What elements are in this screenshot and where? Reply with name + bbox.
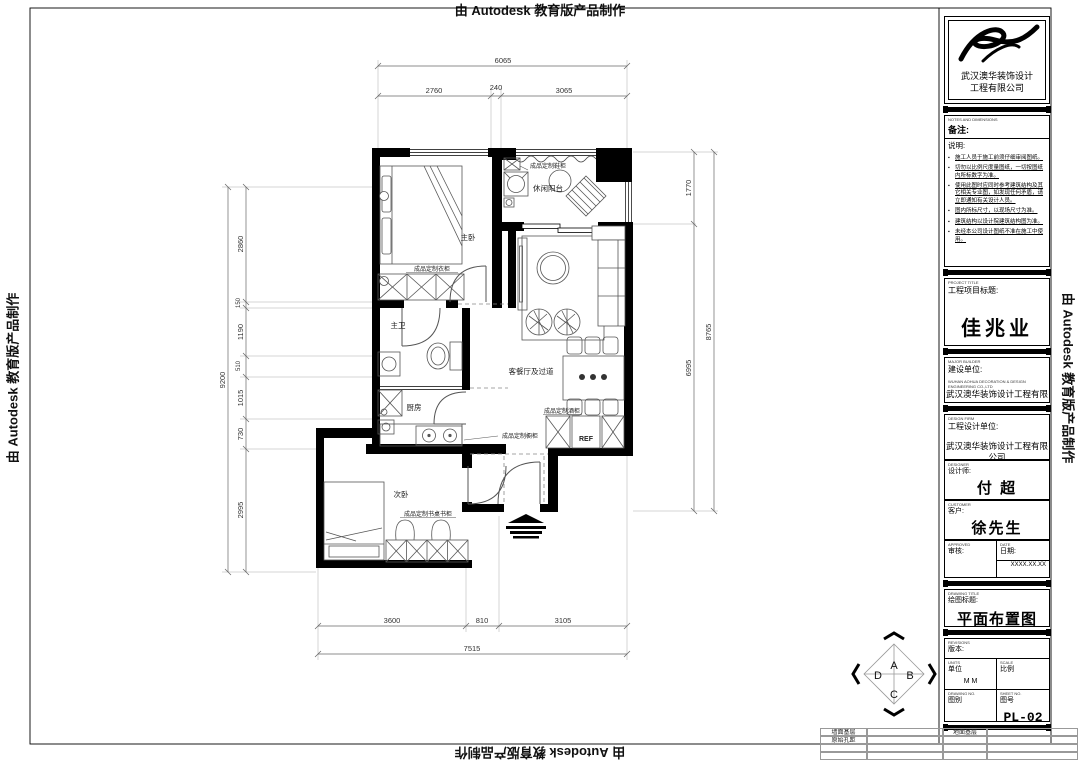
footer-floor-base-label: 地面基层: [943, 728, 987, 736]
designer-label: 设计师:: [945, 468, 1049, 477]
sheet-no-cell: SHEET NO. 图号 PL-02: [997, 690, 1049, 722]
divider-bar: [947, 581, 1047, 586]
dim-left-seg: 2860: [236, 236, 245, 253]
label-balcony: 休闲阳台: [533, 183, 563, 193]
design-firm-en: DESIGN FIRM: [945, 415, 1049, 422]
label-fridge: REF: [579, 436, 594, 443]
approved-cell: APPROVED 审核:: [945, 541, 997, 577]
units-cell: UNITS 单位 M M: [945, 659, 997, 689]
revisions-label: 版本:: [945, 646, 1049, 655]
design-firm-label: 工程设计单位:: [945, 422, 1049, 432]
note-item: 建筑结构以设计院建筑结构图为准。: [955, 219, 1045, 226]
sheet-no-en: SHEET NO.: [997, 690, 1049, 697]
project-title: 佳兆业: [945, 312, 1049, 341]
notes-header-en: NOTES AND DIMENSIONS: [945, 116, 1049, 123]
project-title-panel: PROJECT TITLE 工程项目标题: 佳兆业: [944, 278, 1050, 346]
dim-top-seg: 3065: [556, 86, 573, 95]
footer-wall-base-label: 墙面基层: [820, 728, 867, 736]
chair: [396, 520, 415, 540]
footer-empty-cell: [987, 736, 1078, 744]
plant: [554, 309, 580, 335]
company-logo-panel: 武汉澳华装饰设计 工程有限公司: [944, 16, 1050, 104]
ref-letter-c: C: [890, 689, 898, 701]
label-desk-bookcase: 成品定制书桌书柜: [404, 510, 452, 518]
note-item: 图内所标尺寸，以现场尺寸为准。: [955, 208, 1045, 215]
sofa: [592, 226, 625, 326]
floor-plan-canvas: 主卧 休闲阳台 主卫 厨房 客餐厅及过道 次卧 REF 成品定制鞋柜 成品定制衣…: [0, 0, 1080, 763]
drawing-title: 平面布置图: [945, 608, 1049, 627]
label-living: 客餐厅及过道: [509, 366, 554, 376]
note-item: 施工人员于施工前须仔细审阅图纸。: [955, 155, 1045, 162]
revisions-en: REVISIONS: [945, 639, 1049, 646]
footer-legend-table: 墙面基层 地面基层 原始孔距: [820, 728, 1078, 760]
dim-left-seg: 730: [236, 428, 245, 441]
footer-empty-cell: [987, 744, 1078, 752]
dim-left-seg: 150: [236, 297, 242, 308]
dim-bottom-seg: 3105: [555, 616, 572, 625]
units-value: M M: [945, 678, 996, 685]
notes-panel: NOTES AND DIMENSIONS 备注: 说明: 施工人员于施工前须仔细…: [944, 115, 1050, 267]
wardrobe: [378, 274, 464, 300]
date-label: 日期:: [997, 548, 1049, 557]
footer-empty-cell: [820, 752, 867, 760]
dim-right-overall: 8765: [704, 324, 713, 341]
footer-empty-cell: [987, 728, 1078, 736]
date-cell: DATE 日期: XXXX.XX.XX: [997, 541, 1049, 577]
note-item: 切勿以比例尺度量图纸，一切按图纸内所标数字为准。: [955, 165, 1045, 180]
dim-right-seg: 1770: [684, 180, 693, 197]
label-wardrobe: 成品定制衣柜: [414, 265, 450, 273]
coffee-table: [537, 252, 569, 284]
notes-label: 备注:: [945, 123, 1049, 136]
builder-label: 建设单位:: [945, 365, 1049, 375]
curtain-line: [516, 156, 596, 162]
elevation-ref-symbol: A B C D: [853, 633, 935, 715]
dim-left-seg: 510: [236, 360, 242, 371]
builder-company: 武汉澳华装饰设计工程有限公司: [945, 389, 1049, 403]
bed2: [324, 482, 384, 560]
footer-empty-cell: [943, 736, 987, 744]
dim-left-seg: 2995: [236, 502, 245, 519]
drawing-title-label: 绘图标题:: [945, 597, 1049, 606]
sheet-no-label: 图号: [997, 697, 1049, 706]
scale-label: 比例: [997, 666, 1049, 675]
ref-letter-d: D: [874, 670, 882, 682]
scale-en: SCALE: [997, 659, 1049, 666]
master-bed: [380, 166, 462, 264]
label-bedroom2: 次卧: [394, 489, 409, 499]
wall-switch-icon: [380, 277, 389, 286]
design-firm-panel: DESIGN FIRM 工程设计单位: 武汉澳华装饰设计工程有限公司: [944, 414, 1050, 460]
mop-basin: [378, 390, 402, 416]
dining-chairs-top: [567, 337, 618, 354]
designer-panel: DESIGNER 设计师: 付 超: [944, 460, 1050, 500]
approved-en: APPROVED: [945, 541, 996, 548]
toilet: [427, 342, 462, 370]
date-value: XXXX.XX.XX: [997, 560, 1049, 569]
customer-panel: CUSTOMER 客户: 徐先生: [944, 500, 1050, 540]
logo-inner-box: 武汉澳华装饰设计 工程有限公司: [948, 20, 1046, 100]
desk-bookcase: [386, 540, 468, 562]
designer-en: DESIGNER: [945, 461, 1049, 468]
ref-letter-a: A: [890, 660, 898, 672]
kitchen-counter: [380, 424, 462, 446]
units-label: 单位: [945, 666, 996, 675]
wine-cabinet: [546, 416, 624, 448]
company-name-line2: 工程有限公司: [949, 82, 1045, 94]
dim-left-overall: 9200: [218, 372, 227, 389]
divider-bar: [947, 107, 1047, 112]
divider-bar: [947, 270, 1047, 275]
footer-empty-cell: [943, 744, 987, 752]
washbasin: [378, 352, 400, 376]
plant: [526, 309, 552, 335]
label-kitchen: 厨房: [407, 402, 422, 412]
pendant-lights: [579, 374, 607, 380]
dim-left-seg: 1190: [236, 324, 245, 340]
drawing-no-cell: DRAWING NO. 图别: [945, 690, 997, 722]
project-title-label: 工程项目标题:: [945, 286, 1049, 296]
dim-bottom-seg: 3600: [384, 616, 401, 625]
note-item: 未经本公司设计图纸不准在施工中使用。: [955, 229, 1045, 244]
date-en: DATE: [997, 541, 1049, 548]
sheet-number: PL-02: [997, 710, 1049, 722]
customer-en: CUSTOMER: [945, 501, 1049, 508]
company-name-line1: 武汉澳华装饰设计: [949, 70, 1045, 82]
units-en: UNITS: [945, 659, 996, 666]
drawing-title-en: DRAWING TITLE: [945, 590, 1049, 597]
label-bath: 主卫: [391, 320, 406, 330]
project-title-en: PROJECT TITLE: [945, 279, 1049, 286]
label-shoe-cabinet: 成品定制鞋柜: [530, 162, 566, 170]
dim-bottom-seg: 810: [476, 616, 489, 625]
approved-label: 审核:: [945, 548, 996, 557]
footer-empty-cell: [867, 744, 943, 752]
entrance-steps-icon: [506, 514, 546, 539]
washing-machine: [504, 172, 528, 196]
builder-company-en: WUHAN AOHUA DECORATION & DESIGN ENGINEER…: [945, 378, 1049, 390]
customer-name: 徐先生: [945, 517, 1049, 538]
footer-empty-cell: [820, 744, 867, 752]
dim-top-seg: 240: [490, 83, 503, 92]
approved-date-panel: APPROVED 审核: DATE 日期: XXXX.XX.XX: [944, 540, 1050, 578]
dim-right-seg: 6995: [684, 360, 693, 377]
footer-empty-cell: [987, 752, 1078, 760]
drawing-no-label: 图别: [945, 697, 996, 706]
company-logo: [953, 23, 1041, 65]
design-firm-company: 武汉澳华装饰设计工程有限公司: [945, 441, 1049, 460]
label-wine-cabinet: 成品定制酒柜: [544, 407, 580, 415]
dim-left-seg: 1015: [236, 390, 245, 407]
dim-top-overall: 6065: [495, 56, 512, 65]
divider-bar: [947, 406, 1047, 411]
drawing-no-en: DRAWING NO.: [945, 690, 996, 697]
dim-bottom-overall: 7515: [464, 644, 481, 653]
title-block: 武汉澳华装饰设计 工程有限公司 NOTES AND DIMENSIONS 备注:…: [944, 16, 1050, 736]
revision-scale-panel: REVISIONS 版本: UNITS 单位 M M SCALE 比例 DRAW…: [944, 638, 1050, 722]
builder-en: MAJOR BUILDER: [945, 358, 1049, 365]
label-master: 主卧: [461, 232, 476, 242]
footer-empty-cell: [867, 728, 943, 736]
footer-empty-cell: [867, 752, 943, 760]
footer-empty-cell: [943, 752, 987, 760]
drawing-title-panel: DRAWING TITLE 绘图标题: 平面布置图: [944, 589, 1050, 627]
divider-bar: [947, 630, 1047, 635]
tv-cabinet: [518, 238, 527, 310]
wall-switch-icon: [380, 192, 389, 201]
furniture: [324, 158, 625, 562]
dim-top-seg: 2760: [426, 86, 443, 95]
label-kitchen-cabinet: 成品定制橱柜: [502, 432, 538, 440]
designer-name: 付 超: [945, 477, 1049, 498]
divider-bar: [947, 349, 1047, 354]
footer-orig-holes-label: 原始孔距: [820, 736, 867, 744]
customer-label: 客户:: [945, 508, 1049, 517]
note-item: 使用此图时应同时参考建筑结构及其它相关专业图，如发现任何矛盾，请立即通知有关设计…: [955, 183, 1045, 205]
footer-empty-cell: [867, 736, 943, 744]
chair: [432, 520, 451, 540]
ref-letter-b: B: [906, 670, 913, 682]
scale-cell: SCALE 比例: [997, 659, 1049, 689]
notes-subtitle: 说明:: [945, 138, 1049, 152]
builder-panel: MAJOR BUILDER 建设单位: WUHAN AOHUA DECORATI…: [944, 357, 1050, 403]
